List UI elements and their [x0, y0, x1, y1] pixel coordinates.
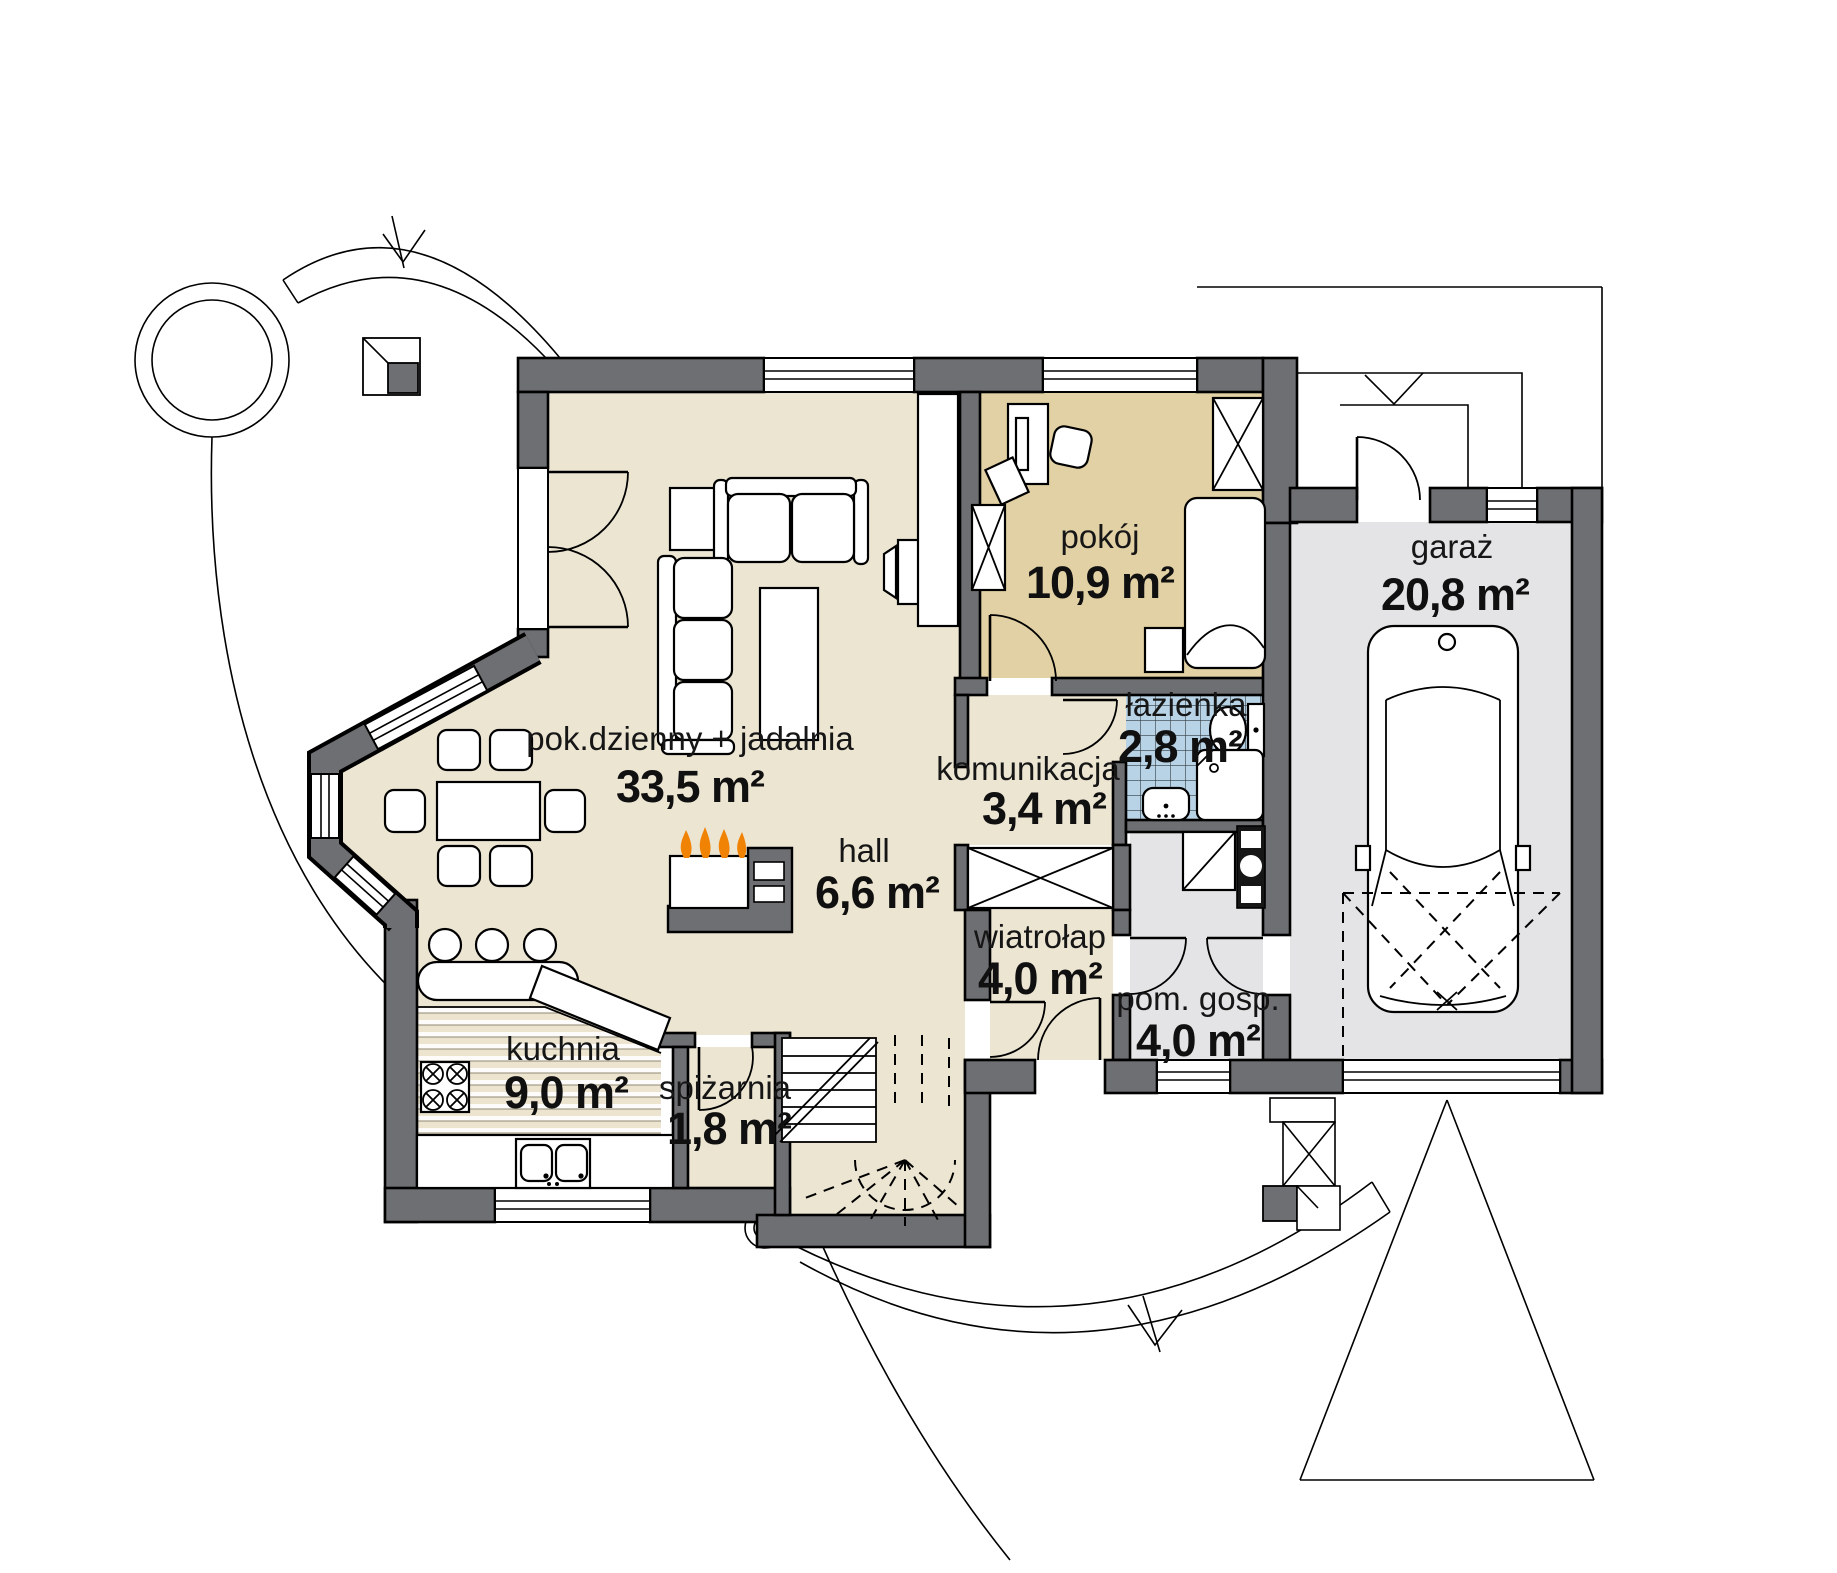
label-pomgosp-name: pom. gosp. — [1116, 980, 1279, 1017]
floor-plan-drawing: pok.dzienny + jadalnia 33,5 m² pokój 10,… — [0, 0, 1837, 1573]
duct-column — [918, 394, 958, 626]
bathroom-sink — [1143, 788, 1189, 820]
washer — [1183, 832, 1235, 890]
label-garaz-name: garaż — [1411, 528, 1494, 565]
coffee-table — [760, 588, 818, 740]
kitchen-counter — [417, 1135, 673, 1188]
boiler — [1237, 826, 1265, 908]
floor-plan-canvas: pok.dzienny + jadalnia 33,5 m² pokój 10,… — [0, 0, 1837, 1573]
round-tower-inner — [152, 300, 272, 420]
label-pomgosp-area: 4,0 m² — [1136, 1015, 1261, 1066]
vent-duct — [972, 505, 1005, 590]
label-kuchnia-area: 9,0 m² — [504, 1067, 629, 1118]
label-lazienka-area: 2,8 m² — [1118, 721, 1243, 772]
pokoj-wardrobe — [1213, 398, 1263, 490]
label-spizarnia-name: spiżarnia — [659, 1069, 792, 1106]
hall-wardrobe — [968, 848, 1113, 908]
chimney-right — [1263, 1186, 1297, 1221]
bed — [1185, 498, 1265, 668]
porch-roof-valley — [1365, 373, 1423, 404]
label-pokoj-area: 10,9 m² — [1026, 557, 1175, 608]
label-lazienka-name: łazienka — [1125, 686, 1247, 723]
garage-gable — [1300, 1100, 1594, 1480]
label-garaz-area: 20,8 m² — [1381, 569, 1530, 620]
roof-band-outer — [283, 248, 560, 358]
window-pokoj-top — [1043, 358, 1197, 392]
garage-door — [1343, 1060, 1560, 1093]
terrace-arc — [823, 1247, 1010, 1560]
stove — [421, 1062, 469, 1112]
terrace-band-marks — [1128, 1182, 1390, 1352]
french-door-frame — [518, 468, 548, 629]
label-komunikacja-name: komunikacja — [936, 750, 1120, 787]
label-living-name: pok.dzienny + jadalnia — [526, 720, 854, 757]
label-wiatrolap-name: wiatrołap — [973, 918, 1106, 955]
nightstand — [1145, 628, 1183, 672]
car — [1356, 626, 1530, 1012]
sofa-two-seat — [714, 478, 868, 564]
roof-band-marks — [283, 216, 425, 303]
label-wiatrolap-area: 4,0 m² — [978, 953, 1103, 1004]
floor-living — [548, 392, 960, 912]
window-bay-left — [311, 774, 339, 838]
door-garage-side — [1357, 437, 1420, 500]
round-tower-outer — [135, 283, 289, 437]
window-kitchen-bottom — [495, 1188, 650, 1222]
label-hall-area: 6,6 m² — [815, 867, 940, 918]
roof-band-inner — [298, 277, 546, 358]
label-living-area: 33,5 m² — [616, 761, 765, 812]
tv-cabinet — [884, 540, 920, 604]
label-pokoj-name: pokój — [1061, 518, 1140, 555]
chimney-flue — [388, 363, 418, 393]
label-kuchnia-name: kuchnia — [506, 1030, 620, 1067]
label-hall-name: hall — [838, 832, 889, 869]
label-spizarnia-area: 1,8 m² — [667, 1103, 792, 1154]
roof-vent — [1270, 1098, 1335, 1122]
label-komunikacja-area: 3,4 m² — [982, 783, 1107, 834]
window-garage-top — [1487, 488, 1537, 522]
window-living-top — [764, 358, 914, 392]
